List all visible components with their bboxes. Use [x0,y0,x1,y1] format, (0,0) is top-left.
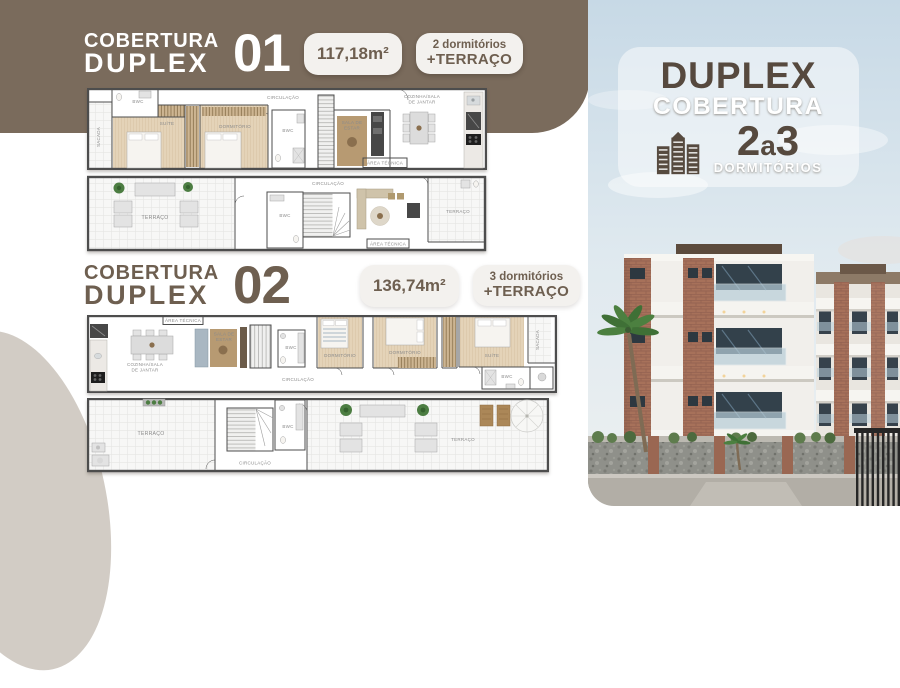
dorm-bed [205,132,241,168]
room-label-bwc1: BWC [285,345,297,350]
kitchen-counter [90,324,108,391]
room-label-suite: SUÍTE [160,120,175,126]
floorplan-duplex01-level1: SACADA BWC SUÍTE DORMITÓRIO CIRCULAÇÃO B… [87,88,487,170]
side-title-duplex: DUPLEX [618,57,859,94]
room-label-circulacao: CIRCULAÇÃO [282,376,314,382]
room-label-dorm1: DORMITÓRIO [324,352,356,358]
side-title-badge: DUPLEX COBERTURA 2a3 DORMITÓRIOS [618,47,859,187]
side-range: 2a3 [714,123,823,159]
room-label-bwc: BWC [279,213,291,218]
side-range-num2: 3 [776,117,799,164]
header2-rooms-line2: +TERRAÇO [484,284,569,301]
room-label-dorm2: DORMITÓRIO [389,349,421,355]
header2-area-badge: 136,74m² [360,265,459,307]
dorm1-bed [321,319,348,348]
stairs [228,409,256,451]
room-label-sala1: SALA DE [342,120,363,125]
room-label-cozinha1: COZINHA/SALA [127,362,163,367]
room-label-suite: SUÍTE [485,352,500,358]
header1-rooms-line2: +TERRAÇO [427,52,512,69]
room-label-sacada: SACADA [96,127,101,147]
room-label-cozinha1: COZINHA/SALA [404,94,440,99]
room-label-areatecnica: ÁREA TÉCNICA [370,240,406,246]
side-range-num1: 2 [737,117,760,164]
header-duplex-01: COBERTURA DUPLEX 01 117,18m² 2 dormitóri… [84,30,523,78]
dining-set [403,112,435,144]
header2-rooms-badge: 3 dormitórios +TERRAÇO [473,265,580,306]
suite-bed [127,132,161,168]
side-range-label: DORMITÓRIOS [714,160,823,175]
room-label-sala2: ESTAR [344,126,360,131]
stairs [319,96,334,168]
room-label-sala2: ESTAR [216,337,232,342]
stairs [304,194,333,237]
buildings-icon [655,131,707,175]
header1-title: COBERTURA DUPLEX [84,32,219,75]
side-range-mid: a [760,130,776,161]
side-title-row: 2a3 DORMITÓRIOS [618,123,859,176]
suite-bed [475,318,510,347]
header1-rooms-badge: 2 dormitórios +TERRAÇO [416,33,523,74]
header1-number: 01 [233,30,290,78]
room-label-areatecnica: ÁREA TÉCNICA [367,160,403,166]
side-range-block: 2a3 DORMITÓRIOS [714,123,823,176]
road [588,474,900,506]
dining-set [131,330,173,360]
room-label-terraco1: TERRAÇO [141,215,168,221]
room-label-bwc2: BWC [501,374,513,379]
header-duplex-02: COBERTURA DUPLEX 02 136,74m² 3 dormitóri… [84,262,580,310]
room-label-sacada: SACADA [535,330,540,350]
room-label-areatecnica: ÁREA TÉCNICA [165,317,201,323]
room-label-terraco2: TERRAÇO [451,437,475,442]
room-label-cozinha2: DE JANTAR [409,100,436,105]
floorplan-duplex02-level1: ÁREA TÉCNICA COZINHA/SALA DE JANTAR SALA… [87,315,557,393]
header1-area-badge: 117,18m² [304,33,402,75]
room-label-bwc2: BWC [282,128,294,133]
kitchen-counter [464,92,483,168]
stairs [251,326,271,368]
suite-closet [159,106,185,117]
room-label-dormitorio: DORMITÓRIO [219,123,251,129]
room-label-circulacao: CIRCULAÇÃO [267,94,299,100]
room-label-circulacao: CIRCULAÇÃO [312,180,344,186]
room-label-sala1: SALA DE [214,332,235,337]
dorm2-bed [386,318,424,345]
wardrobe [443,317,456,367]
header1-name: DUPLEX [84,51,219,76]
floorplan-duplex02-level2: TERRAÇO CIRCULAÇÃO BWC TERRAÇO [87,398,549,473]
terrace2-fixtures [461,180,478,188]
room-label-bwc: BWC [282,424,294,429]
room-label-terraco2: TERRAÇO [446,209,470,214]
header2-number: 02 [233,262,290,310]
wardrobe [186,106,199,167]
header2-rooms-line1: 3 dormitórios [484,271,569,284]
header1-rooms-line1: 2 dormitórios [427,39,512,52]
room-label-circulacao: CIRCULAÇÃO [239,460,271,466]
room-label-cozinha2: DE JANTAR [132,368,159,373]
header2-name: DUPLEX [84,283,219,308]
header2-title: COBERTURA DUPLEX [84,264,219,307]
dorm-closet [202,107,266,116]
dorm2-closet [398,357,436,368]
room-label-bwc1: BWC [132,99,144,104]
room-label-terraco1: TERRAÇO [137,431,164,437]
floorplan-duplex01-level2: TERRAÇO BWC CIRCULAÇÃO ÁREA TÉCNICA TERR… [87,175,487,253]
